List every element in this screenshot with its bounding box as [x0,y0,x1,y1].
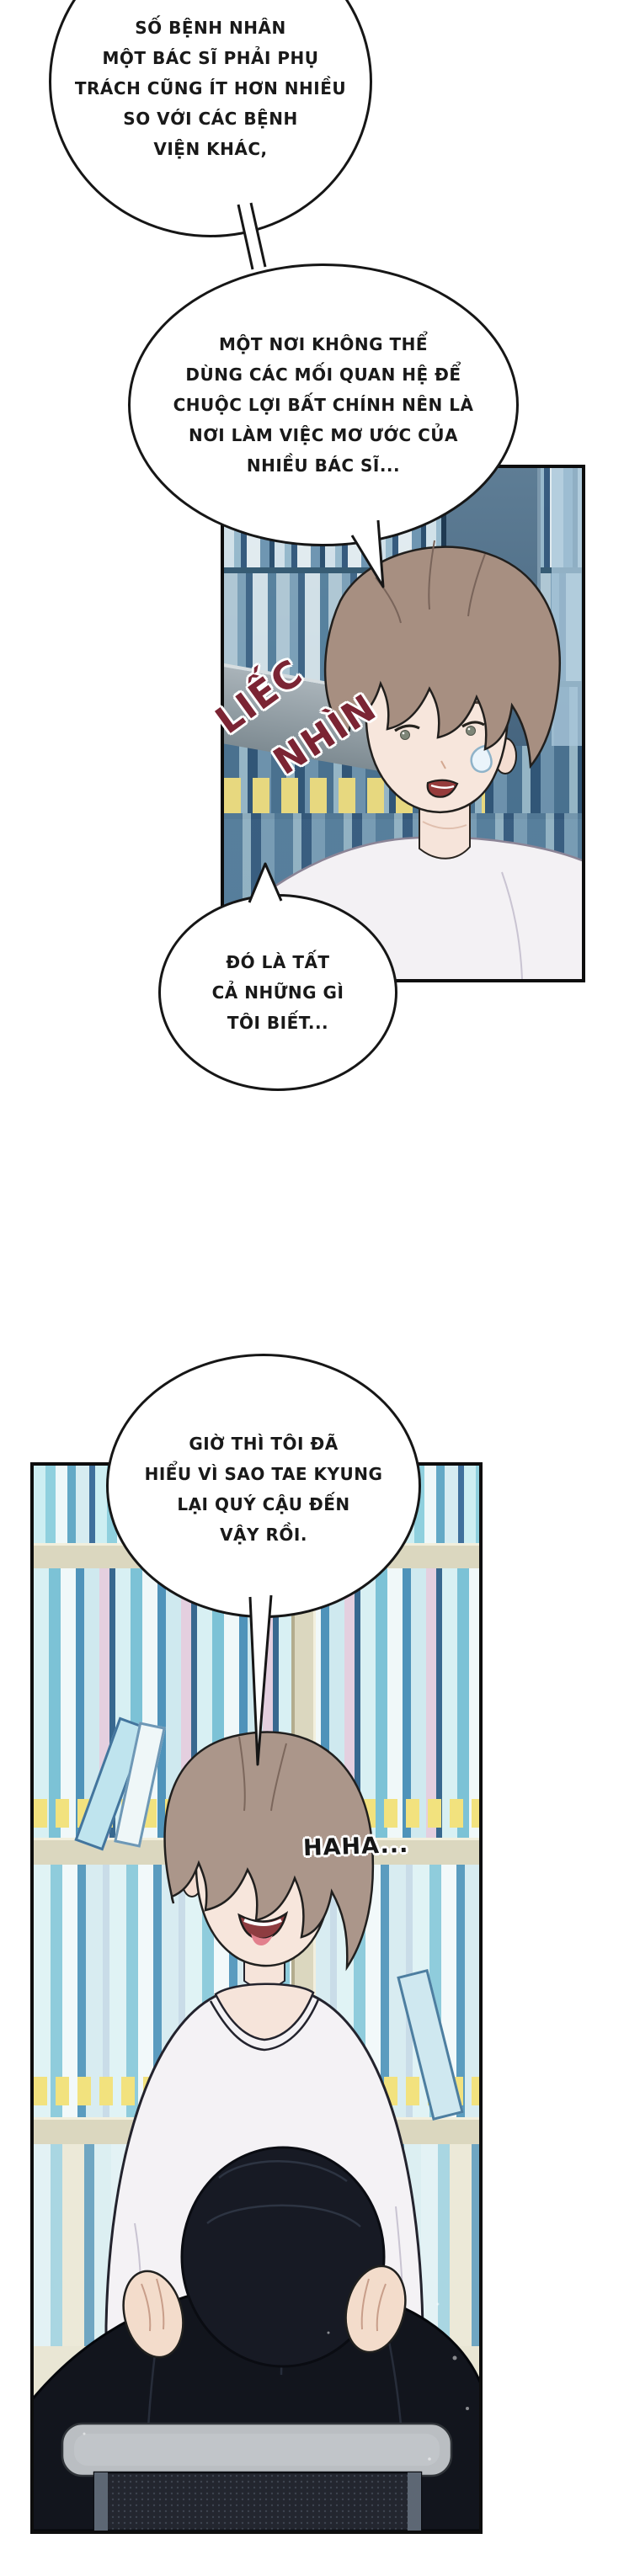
bubble-text-line: DÙNG CÁC MỐI QUAN HỆ ĐỂ [185,359,461,390]
bubble-text-line: HIỂU VÌ SAO TAE KYUNG [145,1459,383,1489]
office-chair-back [62,2424,451,2531]
bubble-text-line: NƠI LÀM VIỆC MƠ ƯỚC CỦA [189,420,458,450]
bubble-text-line: SO VỚI CÁC BỆNH [123,104,297,134]
bubble-text-line: CHUỘC LỢI BẤT CHÍNH NÊN LÀ [173,390,474,420]
bubble-text-line: VẬY RỒI. [220,1520,307,1550]
bubble-text-line: TRÁCH CŨNG ÍT HƠN NHIỀU [75,73,346,104]
comic-page: LIẾC NHÌN HAHA... SỐ BỆNH NHÂN MỘT BÁC S… [0,0,640,2576]
character-young-man-smiling [34,1466,479,2531]
speech-bubble-2: MỘT NƠI KHÔNG THỂ DÙNG CÁC MỐI QUAN HỆ Đ… [128,263,519,546]
bubble-text-line: SỐ BỆNH NHÂN [135,13,285,43]
bubble-text-line: LẠI QUÝ CẬU ĐẾN [177,1489,349,1520]
comic-panel-library-smile [30,1462,483,2534]
bubble-text-line: MỘT BÁC SĨ PHẢI PHỤ [102,43,318,73]
bubble-text-line: TÔI BIẾT... [227,1008,328,1038]
speech-bubble-3: ĐÓ LÀ TẤT CẢ NHỮNG GÌ TÔI BIẾT... [158,894,397,1091]
sfx-laugh: HAHA... [302,1832,408,1861]
bubble-text-line: NHIỀU BÁC SĨ... [247,450,400,481]
bubble-text-line: GIỜ THÌ TÔI ĐÃ [189,1429,338,1459]
bubble-text-line: CẢ NHỮNG GÌ [212,977,344,1008]
speech-bubble-4: GIỜ THÌ TÔI ĐÃ HIỂU VÌ SAO TAE KYUNG LẠI… [106,1354,421,1618]
bubble-text-line: MỘT NƠI KHÔNG THỂ [219,329,428,359]
bubble-text-line: VIỆN KHÁC, [153,134,267,164]
bubble-text-line: ĐÓ LÀ TẤT [226,947,329,977]
speech-bubble-1: SỐ BỆNH NHÂN MỘT BÁC SĨ PHẢI PHỤ TRÁCH C… [49,0,372,237]
